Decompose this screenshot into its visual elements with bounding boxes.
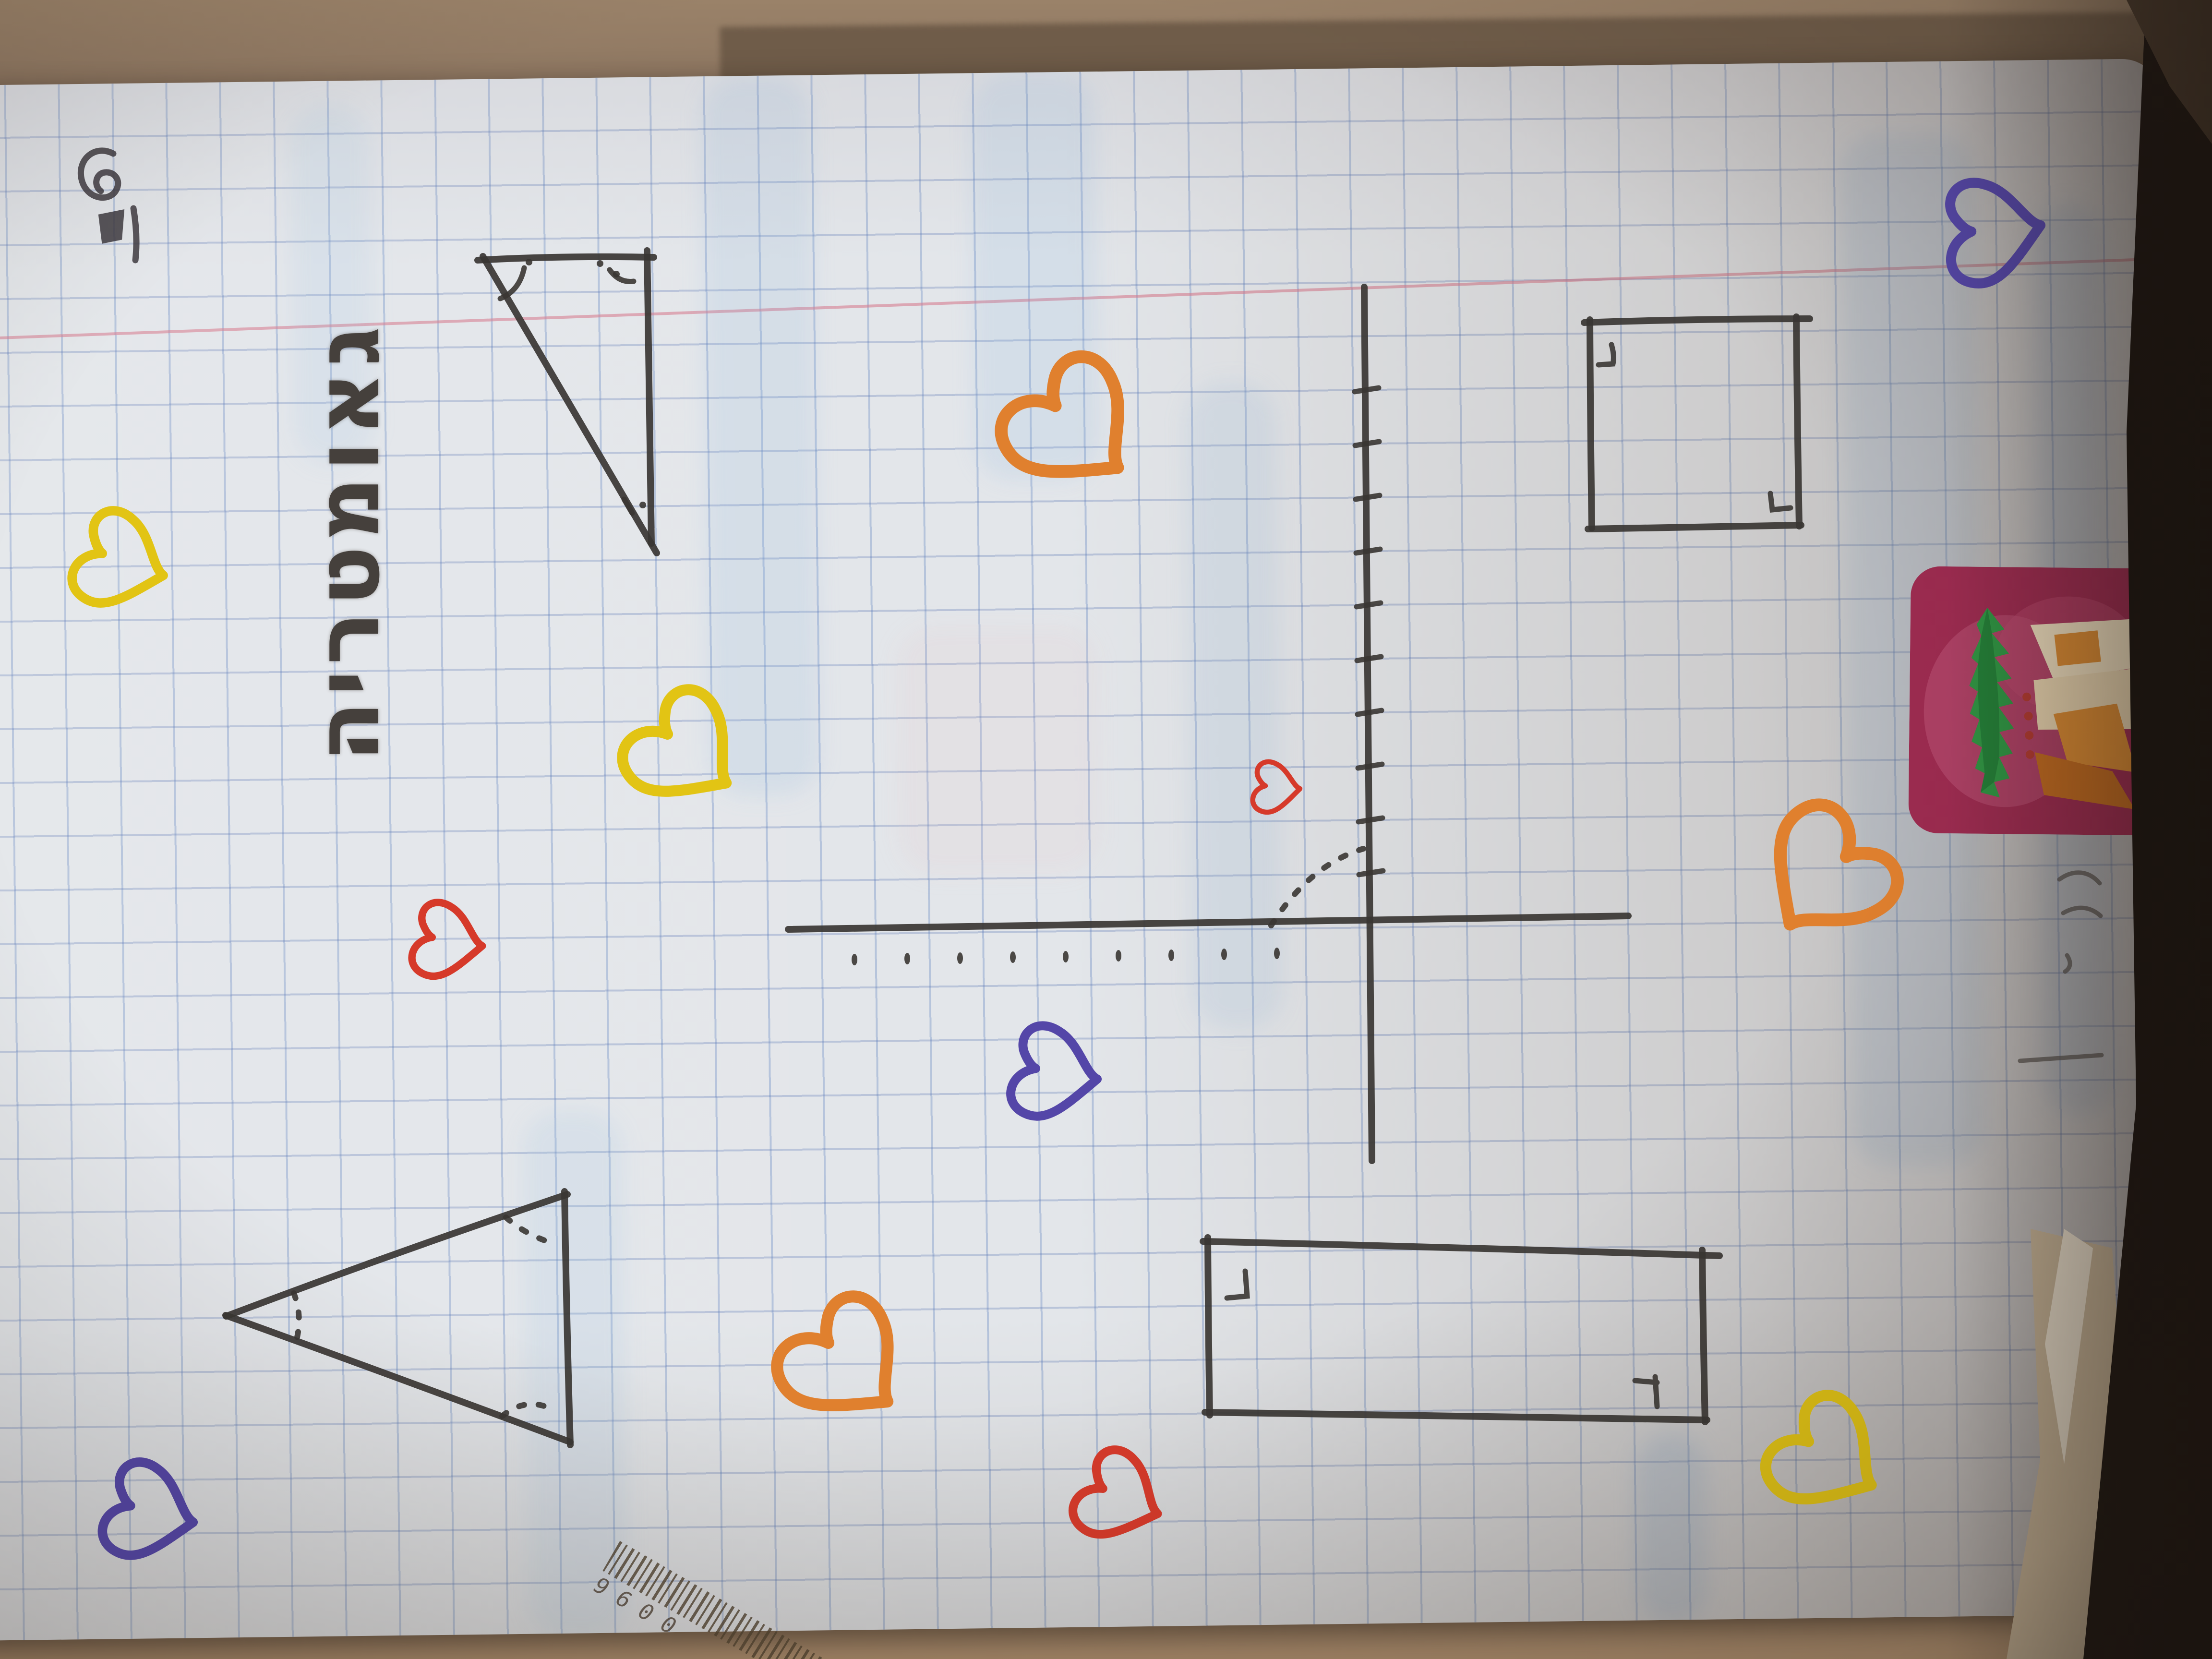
dotted-angle-arc [294, 1293, 299, 1339]
dotted-angle-arc [502, 1404, 548, 1416]
right-angle-mark [1599, 345, 1613, 365]
right-angle-mark [1635, 1377, 1657, 1407]
rectangle-drawing [1203, 1238, 1719, 1422]
horizontal-axis [788, 916, 1628, 929]
horizontal-axis-dots [852, 948, 1280, 965]
corner-scribble [81, 151, 136, 260]
background-shadow-right [2055, 0, 2212, 1659]
heart-icon [73, 1432, 229, 1592]
right-angle-mark [1227, 1271, 1247, 1298]
dotted-angle-arc [506, 1217, 553, 1243]
heart-icon [1910, 140, 2080, 321]
angle-arc [500, 268, 524, 299]
right-triangle-drawing [478, 251, 657, 553]
notebook-photo: גאומטריה [0, 0, 2212, 1659]
heart-icon [1241, 749, 1313, 826]
vertical-axis [1364, 287, 1372, 1161]
axes-drawing [788, 287, 1628, 1161]
right-angle-mark [610, 270, 634, 282]
heart-icon [391, 881, 506, 1000]
heart-icon [986, 1000, 1126, 1145]
dotted-arc [1271, 849, 1363, 926]
square-drawing [1584, 317, 1810, 529]
tick-mark [624, 499, 632, 513]
isosceles-triangle-drawing [226, 1191, 570, 1445]
right-angle-mark [1770, 493, 1791, 510]
